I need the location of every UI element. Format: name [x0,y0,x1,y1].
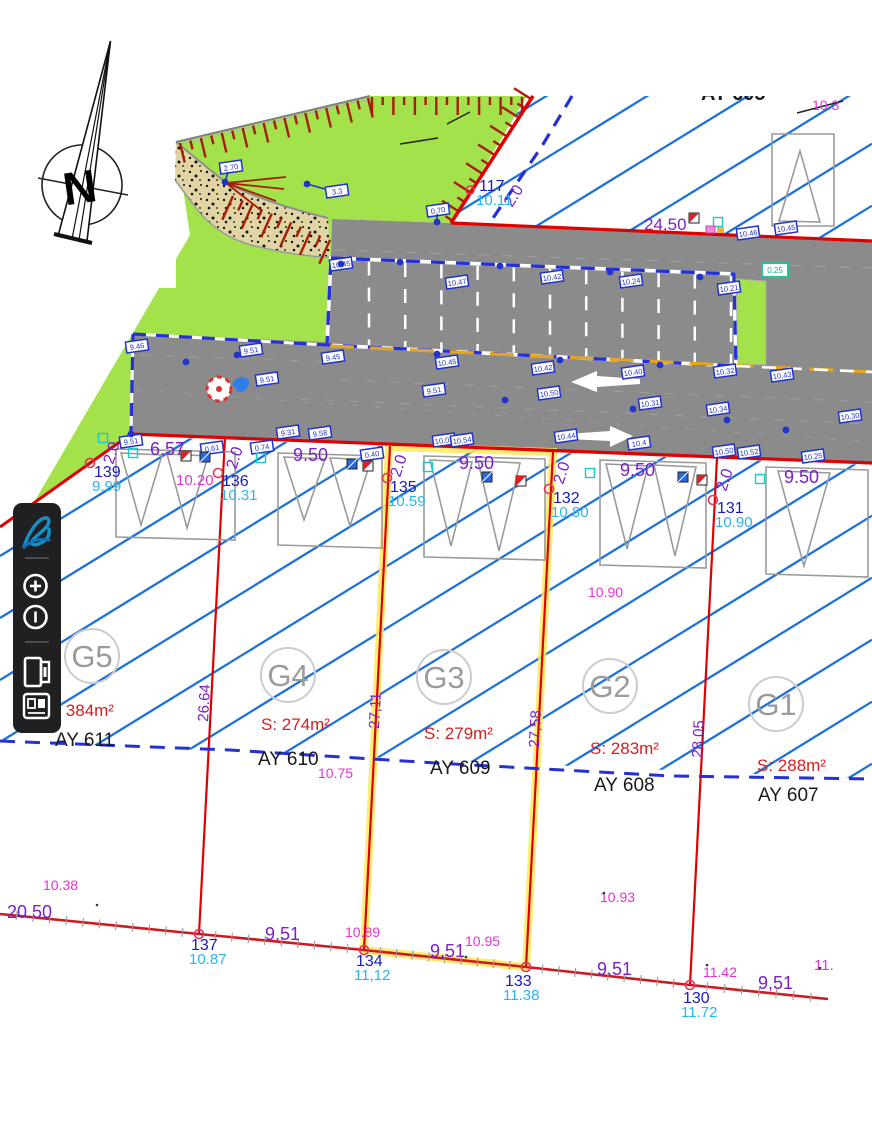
svg-text:AY 611: AY 611 [55,730,114,751]
svg-text:11.: 11. [814,957,834,974]
svg-text:AY 607: AY 607 [758,785,819,806]
svg-text:10.20: 10.20 [176,472,214,489]
svg-text:S: 274m²: S: 274m² [261,715,330,734]
svg-text:AY 608: AY 608 [594,775,655,796]
svg-text:9.50: 9.50 [293,445,328,465]
svg-text:9,51: 9,51 [430,941,465,961]
svg-text:9.50: 9.50 [784,467,819,487]
svg-text:24,50: 24,50 [644,215,687,234]
svg-text:10.3: 10.3 [812,97,839,113]
svg-text:27,11: 27,11 [366,692,385,729]
svg-text:9.50: 9.50 [620,460,655,480]
svg-text:G1: G1 [755,687,796,722]
svg-text:10.95: 10.95 [465,933,500,949]
svg-text:G2: G2 [589,669,630,704]
svg-text:28.05: 28.05 [689,720,708,758]
svg-text:AY 609: AY 609 [430,758,491,779]
svg-text:9,51: 9,51 [758,973,793,993]
svg-text:26.64: 26.64 [195,684,214,722]
svg-text:G4: G4 [267,658,308,693]
svg-text:10.11: 10.11 [476,192,512,209]
svg-text:20.50: 20.50 [7,902,52,922]
svg-text:10.90: 10.90 [588,584,623,600]
svg-text:10.59: 10.59 [388,493,426,510]
svg-text:9,51: 9,51 [265,924,300,944]
svg-text:AY 610: AY 610 [258,749,319,770]
svg-text:11.72: 11.72 [681,1004,717,1021]
svg-text:10.80: 10.80 [551,504,589,521]
svg-text:27,58: 27,58 [526,710,545,748]
svg-text:S: 288m²: S: 288m² [757,756,826,775]
svg-text:11.42: 11.42 [703,964,737,980]
svg-text:9,51: 9,51 [597,959,632,979]
svg-text:6.57: 6.57 [150,439,185,459]
svg-text:10.75: 10.75 [318,765,353,781]
svg-text:10.87: 10.87 [189,951,227,968]
svg-text:S: 283m²: S: 283m² [590,739,659,758]
svg-text:11,12: 11,12 [354,967,390,984]
svg-text:3.3: 3.3 [331,186,343,196]
svg-text:G5: G5 [71,639,112,674]
svg-text:0.25: 0.25 [767,266,783,275]
svg-text:10.38: 10.38 [43,877,78,893]
svg-text:10.89: 10.89 [345,924,380,940]
svg-text:9.50: 9.50 [459,453,494,473]
svg-text:10.93: 10.93 [600,889,635,905]
svg-text:9.99: 9.99 [92,478,121,495]
svg-text:11.38: 11.38 [503,987,539,1004]
svg-text:S: 279m²: S: 279m² [424,724,493,743]
svg-text:10.31: 10.31 [220,487,258,504]
svg-text:G3: G3 [423,660,464,695]
svg-text:10.90: 10.90 [715,514,753,531]
